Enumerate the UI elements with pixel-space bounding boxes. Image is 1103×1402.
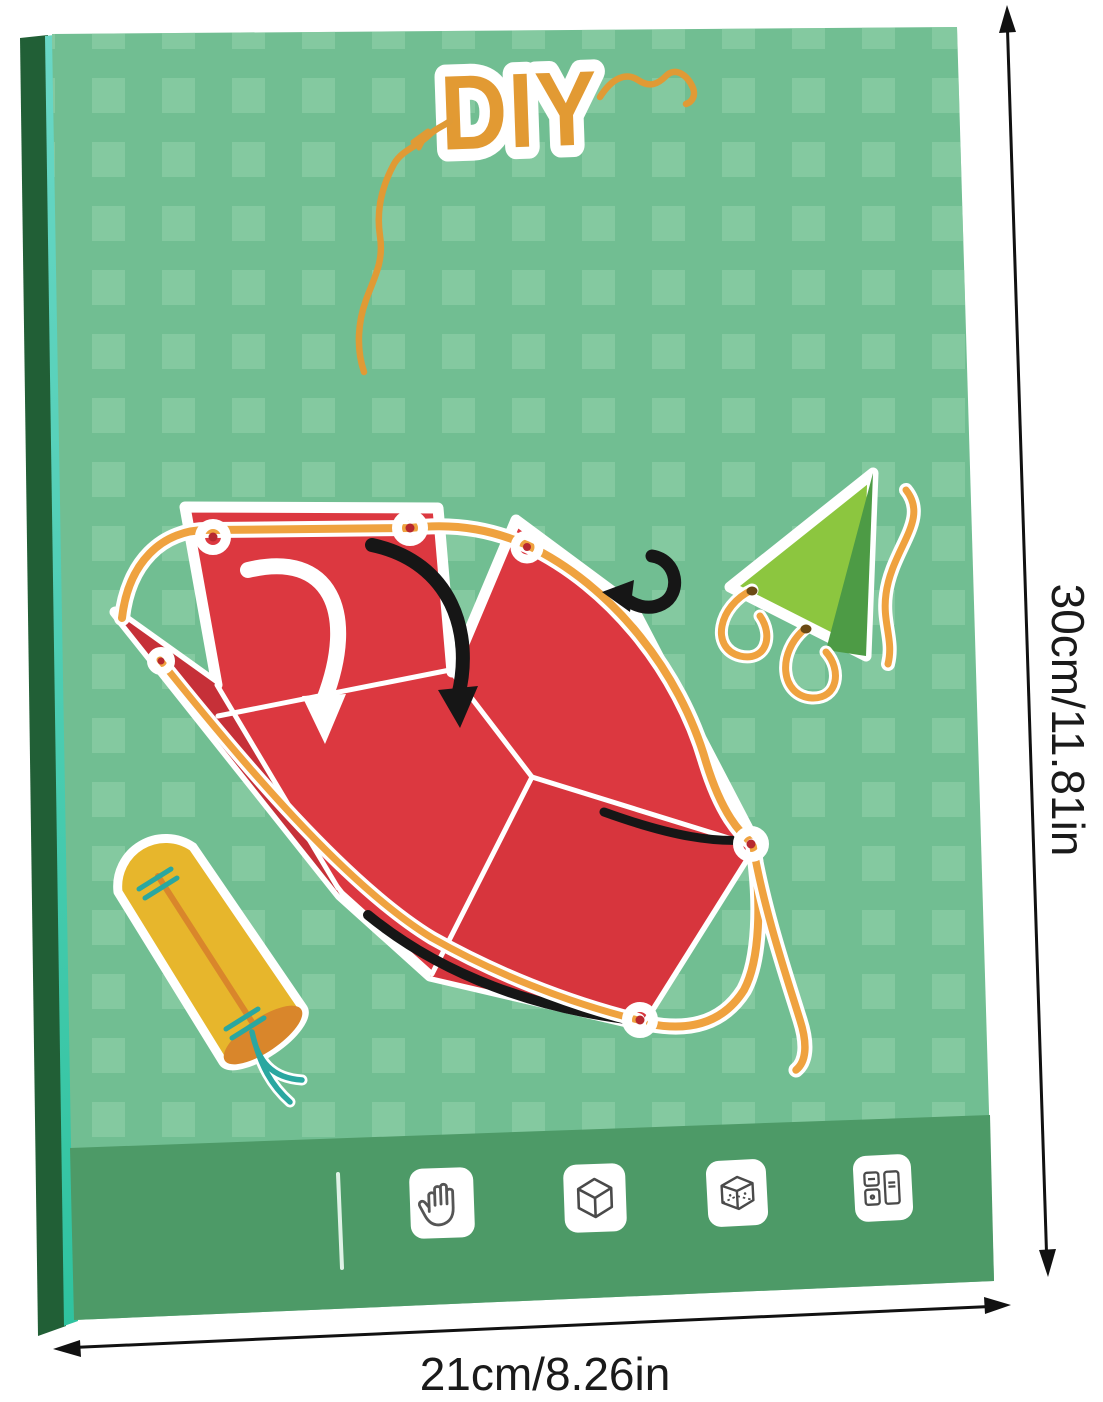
product-photo: DIY [0,0,1103,1402]
grommet [738,831,764,857]
diy-title: DIY [438,49,600,172]
height-arrowhead-bottom [1039,1249,1056,1277]
grommet [515,535,539,559]
grommet [151,651,171,671]
grommet [200,524,226,550]
icon-tile [852,1154,913,1223]
footer-icon-cube [563,1163,627,1233]
footer-icon-hand [409,1167,475,1239]
height-dimension-line [1007,14,1047,1268]
footer-icon-flashcards [852,1154,913,1223]
grommet [397,515,423,541]
grommet [627,1007,653,1033]
footer-band [70,1115,994,1320]
width-arrowhead-right [984,1297,1011,1314]
triangle-hole [801,625,812,634]
height-dimension-label: 30cm/11.81in [1042,584,1094,857]
width-arrowhead-left [53,1340,81,1357]
height-dimension: 30cm/11.81in [999,5,1094,1277]
height-arrowhead-top [999,5,1016,33]
product-photo-canvas: DIY [0,0,1103,1402]
triangle-hole [747,587,758,596]
width-dimension-label: 21cm/8.26in [420,1348,671,1400]
footer-icon-transparent-cube [705,1158,768,1227]
product-box: DIY [20,27,994,1336]
